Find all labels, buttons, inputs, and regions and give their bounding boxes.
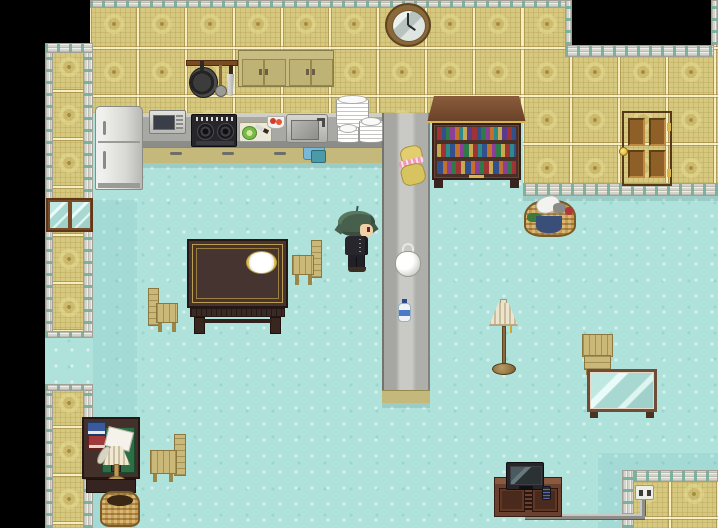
door-knob[interactable] [619,147,628,156]
notch-trim-left [565,0,572,45]
chair-seat [156,303,178,323]
chair-leg [172,323,176,332]
table-plate[interactable] [246,251,277,274]
table-top [187,239,288,308]
chair-seat [150,450,177,474]
bookshelf-ornament [469,175,484,178]
character-buttons [359,239,361,252]
peninsula-base [382,390,430,403]
fridge-base [98,183,140,188]
glass-case-leg [646,412,654,418]
lamp-shade [489,303,518,326]
sink-basin [291,120,319,140]
glass-case-top [587,369,657,412]
window-pane-left [50,202,68,228]
character-shoes [348,267,366,272]
chair-leg [308,275,312,285]
door-hinge [667,123,671,131]
door-panel [649,118,666,146]
outlet-socket [639,490,643,496]
knife-icon [229,65,233,75]
chair-seat [584,355,611,370]
tv-remote[interactable] [542,486,551,500]
microwave-buttons [176,115,183,129]
book-row [437,144,516,157]
counter-drawer-handle [170,152,182,155]
stove-tray [196,141,234,145]
cabinet-handle [312,69,315,75]
counter-drawer-handle [274,152,286,155]
door-panel [628,150,645,178]
counter-shadow [143,163,382,168]
book-row [437,127,516,140]
upper-cabinets[interactable] [238,50,334,87]
corner-floor-pattern-h [598,453,718,470]
pot-rack[interactable] [186,57,238,101]
table-rail [203,319,272,323]
chair-right[interactable] [292,240,322,286]
opening-cap-top [45,331,93,338]
notch-trim-right [711,0,718,45]
fridge-door-handle [103,151,106,169]
bookshelf[interactable] [427,96,526,188]
lamp-pole [502,326,506,365]
stove-burner [217,123,234,140]
tv-base [519,486,533,489]
outlet-socket [647,490,651,496]
right-baseboard [523,183,718,196]
chair-back [582,334,613,357]
window-pane-right [72,202,90,228]
left-wall-cap [45,43,93,53]
chair-desk[interactable] [150,434,186,482]
chair-left[interactable] [148,288,178,333]
cloth-blue-drape [536,216,562,233]
writing-desk[interactable] [82,417,140,495]
tv-screen [510,466,542,485]
cable-riser [640,499,646,516]
wastebasket-opening [107,495,133,506]
tomato-bowl[interactable] [267,116,285,129]
stove[interactable] [191,114,237,147]
book-row [437,161,516,174]
fridge[interactable] [95,106,143,190]
chair-leg [158,323,162,332]
door[interactable] [622,111,672,186]
chair-leg [153,474,157,482]
tv-stand-door [499,488,525,512]
dining-table[interactable] [187,239,288,334]
knife-blade [227,74,234,96]
bottom-right-wall-trim-top [622,470,718,482]
door-hinge [667,169,671,177]
outside-notch [572,0,712,45]
plate-stack-small[interactable] [337,126,359,143]
microwave[interactable] [149,110,186,134]
lamp-base [492,363,516,375]
stove-burner [197,123,214,140]
tv-stand-vent [525,490,532,510]
desk-book-blue [87,422,106,435]
microwave-window [153,115,175,130]
bag-body [395,251,421,277]
fridge-door-handle [103,121,106,135]
player-character[interactable] [338,209,376,273]
opening-cap-bottom [45,384,93,391]
door-panel [649,150,666,178]
bookshelf-leg [434,180,443,188]
frying-pan-icon [189,67,218,98]
tv[interactable] [506,462,544,490]
plastic-bag[interactable] [395,243,421,278]
notch-trim-bottom [565,45,714,57]
chair-leg [295,275,299,285]
window[interactable] [46,198,93,232]
dish-bin [311,150,326,163]
wastebasket[interactable] [100,491,140,527]
sink[interactable] [286,114,328,143]
laundry-basket[interactable] [524,196,576,237]
chair-leg [169,474,173,482]
wall-clock [385,3,431,47]
skimmer-head [215,85,227,97]
door-panel [628,118,645,146]
floor-lamp[interactable] [489,299,519,377]
stove-controls [196,117,234,121]
lettuce-icon [242,126,257,140]
skimmer-icon [219,65,222,87]
chair-seat [292,255,314,275]
faucet-icon [322,118,325,127]
bookshelf-leg [510,180,519,188]
cabinet-handle [306,69,309,75]
left-wall-trim-outer [45,43,53,528]
character-body [345,236,368,255]
bottle-label [399,310,410,316]
plate-stack-small[interactable] [359,119,383,143]
glass-case[interactable] [587,369,657,418]
game-viewport[interactable] [0,0,718,528]
tomato [276,119,282,125]
pan-handle [200,61,204,71]
character-eye [367,227,370,232]
cabinet-handle [265,69,268,75]
table-skirt [190,308,285,317]
cabinet-handle [259,69,262,75]
counter-drawer-handle [222,152,234,155]
lamp-chain [510,325,512,333]
water-bottle[interactable] [398,299,411,323]
cloth-red [565,207,573,215]
bookshelf-canopy [427,96,526,123]
glass-case-leg [590,412,598,418]
peninsula-shadow [382,403,430,408]
wall-opening[interactable] [45,337,93,385]
power-outlet[interactable] [635,485,654,500]
